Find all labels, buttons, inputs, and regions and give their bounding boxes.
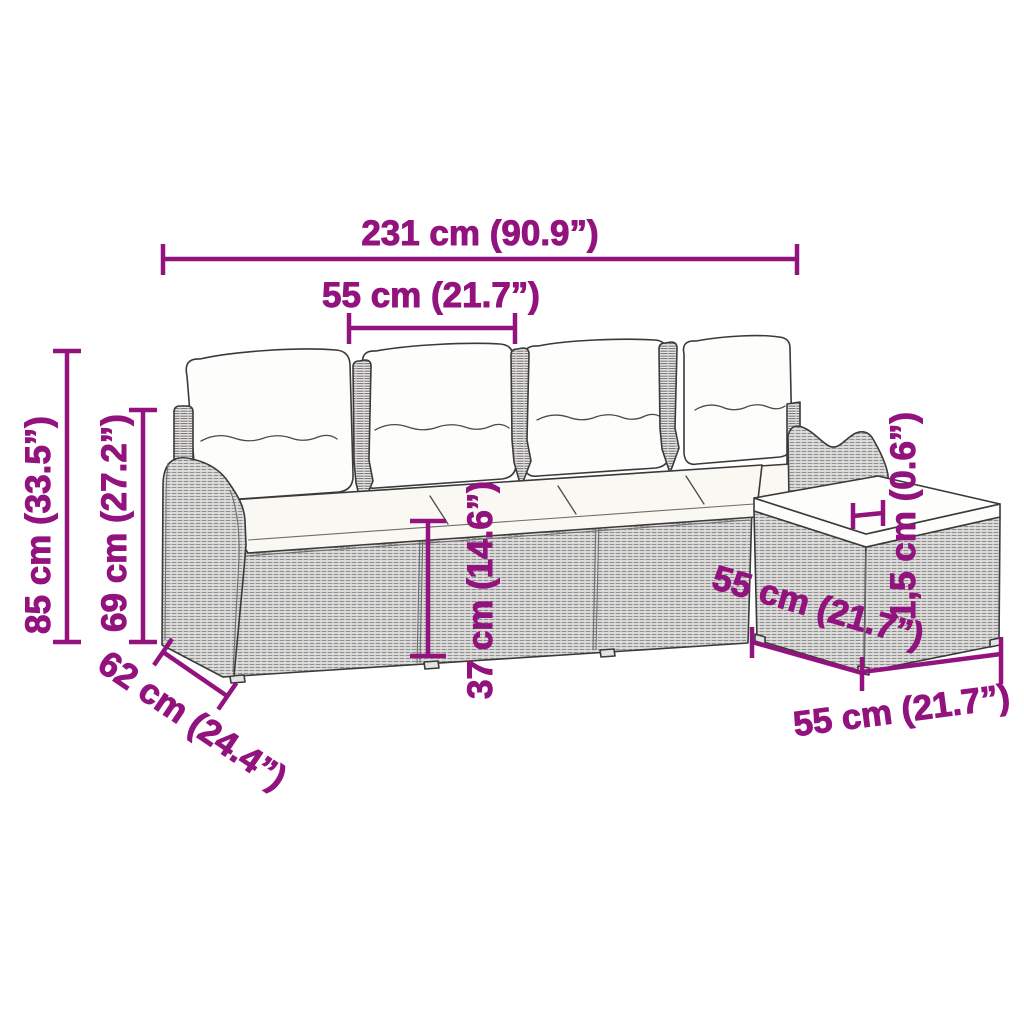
backrest-post-2 [353, 360, 373, 507]
back-cushion-2 [362, 343, 516, 488]
dim-overall-height: 85 cm (33.5”) [19, 351, 81, 642]
footstool-foot [990, 638, 1000, 647]
dim-seat-module-width: 55 cm (21.7”) [322, 276, 540, 344]
sofa-foot [424, 661, 439, 669]
dim-seat-height-label: 37 cm (14.6”) [461, 481, 500, 699]
dim-footstool-width-label: 55 cm (21.7”) [791, 677, 1012, 744]
dim-overall-height-label: 85 cm (33.5”) [19, 416, 58, 634]
garden-sofa-dimension-diagram: 231 cm (90.9”) 55 cm (21.7”) 85 cm (33.5… [0, 0, 1024, 1024]
dim-backrest-height: 69 cm (27.2”) [95, 410, 157, 642]
sofa-foot [600, 649, 615, 657]
back-cushion-3 [524, 339, 669, 476]
dim-overall-width-label: 231 cm (90.9”) [361, 214, 598, 253]
dim-backrest-height-label: 69 cm (27.2”) [95, 414, 134, 632]
back-cushion-4 [684, 336, 793, 465]
dimension-diagram-canvas: 231 cm (90.9”) 55 cm (21.7”) 85 cm (33.5… [0, 0, 1024, 1024]
dim-seat-module-width-label: 55 cm (21.7”) [322, 276, 540, 315]
left-armrest [162, 458, 246, 677]
footstool [754, 476, 1000, 675]
dim-cushion-thickness-label: 1,5 cm (0.6”) [884, 412, 923, 620]
dim-overall-width: 231 cm (90.9”) [163, 214, 797, 275]
